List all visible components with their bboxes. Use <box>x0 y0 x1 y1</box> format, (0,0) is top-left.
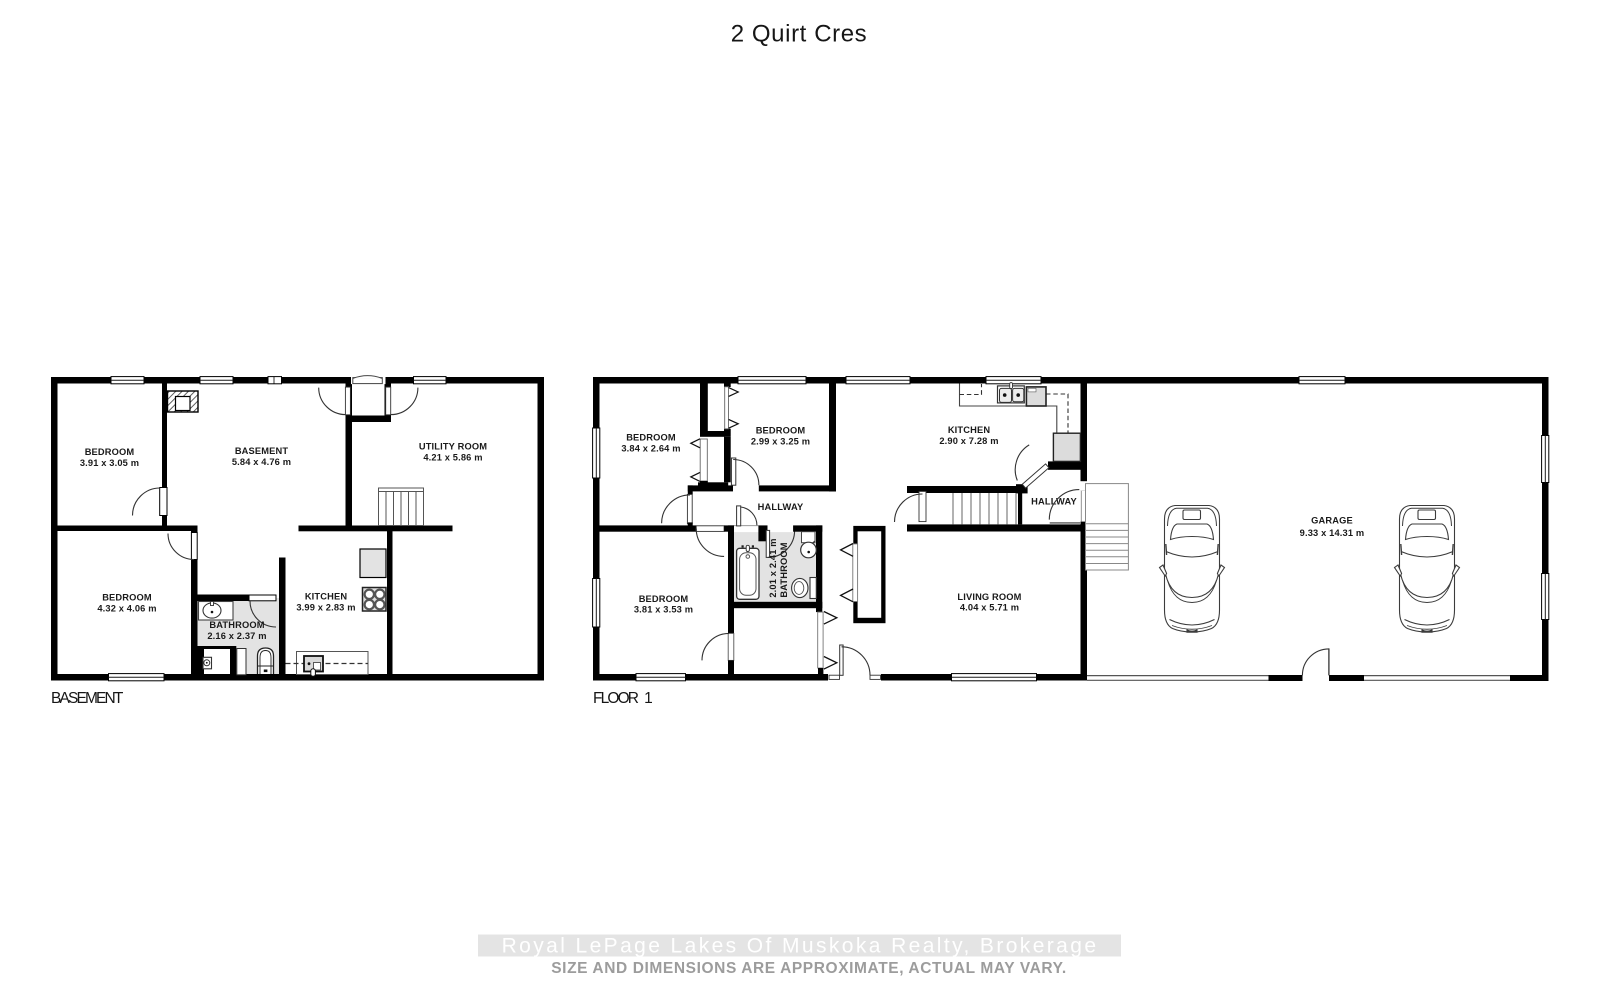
svg-text:HALLWAY: HALLWAY <box>1031 497 1077 507</box>
svg-text:BATHROOM: BATHROOM <box>779 542 789 597</box>
svg-text:4.21 x 5.86 m: 4.21 x 5.86 m <box>423 453 482 463</box>
svg-text:5.84 x 4.76 m: 5.84 x 4.76 m <box>232 457 291 467</box>
svg-text:UTILITY ROOM: UTILITY ROOM <box>419 442 487 452</box>
svg-text:BATHROOM: BATHROOM <box>209 620 264 630</box>
svg-text:KITCHEN: KITCHEN <box>948 425 991 435</box>
svg-text:SIZE AND DIMENSIONS ARE APPROX: SIZE AND DIMENSIONS ARE APPROXIMATE, ACT… <box>551 960 1067 977</box>
svg-text:3.91 x 3.05 m: 3.91 x 3.05 m <box>80 458 139 468</box>
svg-text:KITCHEN: KITCHEN <box>305 592 348 602</box>
svg-text:BEDROOM: BEDROOM <box>639 594 689 604</box>
svg-text:9.33 x 14.31 m: 9.33 x 14.31 m <box>1300 528 1365 538</box>
svg-text:FLOOR 1: FLOOR 1 <box>593 690 652 707</box>
svg-text:4.04 x 5.71 m: 4.04 x 5.71 m <box>960 602 1019 612</box>
svg-text:GARAGE: GARAGE <box>1311 515 1353 525</box>
svg-text:3.99 x 2.83 m: 3.99 x 2.83 m <box>296 603 355 613</box>
svg-text:2.16 x 2.37 m: 2.16 x 2.37 m <box>207 631 266 641</box>
svg-text:BEDROOM: BEDROOM <box>626 432 676 442</box>
svg-text:BEDROOM: BEDROOM <box>756 425 806 435</box>
svg-text:BASEMENT: BASEMENT <box>51 690 124 707</box>
svg-text:2.90 x 7.28 m: 2.90 x 7.28 m <box>939 436 998 446</box>
svg-text:BEDROOM: BEDROOM <box>102 593 152 603</box>
svg-text:BASEMENT: BASEMENT <box>235 446 289 456</box>
svg-text:2.99 x 3.25 m: 2.99 x 3.25 m <box>751 436 810 446</box>
svg-text:2.01 x 2.41 m: 2.01 x 2.41 m <box>768 538 778 597</box>
svg-text:3.84 x 2.64 m: 3.84 x 2.64 m <box>621 443 680 453</box>
svg-text:4.32 x 4.06 m: 4.32 x 4.06 m <box>97 604 156 614</box>
svg-text:BEDROOM: BEDROOM <box>85 447 135 457</box>
svg-text:HALLWAY: HALLWAY <box>758 502 804 512</box>
svg-text:Royal LePage Lakes Of Muskoka: Royal LePage Lakes Of Muskoka Realty, Br… <box>502 935 1099 958</box>
svg-text:3.81 x 3.53 m: 3.81 x 3.53 m <box>634 604 693 614</box>
svg-text:2 Quirt Cres: 2 Quirt Cres <box>731 20 868 47</box>
svg-text:LIVING ROOM: LIVING ROOM <box>957 592 1021 602</box>
